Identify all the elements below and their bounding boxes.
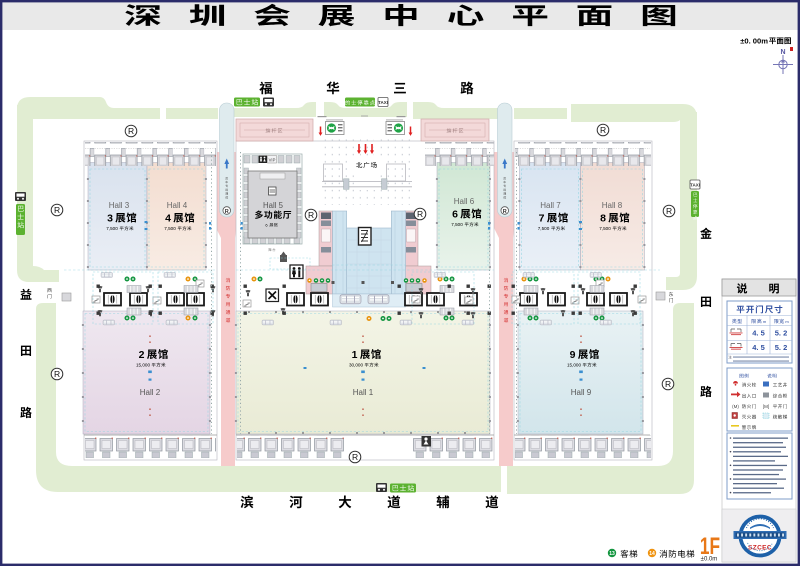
svg-text:R: R: [503, 209, 507, 215]
svg-text:13: 13: [609, 551, 615, 557]
svg-text:TAXI: TAXI: [690, 183, 700, 188]
svg-text:30,000: 30,000: [349, 363, 363, 368]
svg-text:VIP: VIP: [269, 157, 276, 162]
svg-text:TAXI: TAXI: [378, 100, 388, 105]
svg-text:Hall 8: Hall 8: [602, 201, 623, 210]
svg-text:5. 2: 5. 2: [775, 329, 788, 338]
svg-text:15,000: 15,000: [136, 363, 150, 368]
svg-text:7,500: 7,500: [106, 226, 118, 231]
svg-text:Hall 9: Hall 9: [571, 388, 592, 397]
svg-text:±0.0m: ±0.0m: [701, 557, 718, 563]
svg-text:Hall 5: Hall 5: [263, 201, 284, 210]
svg-text:7: 7: [539, 213, 545, 225]
svg-text:Hall 1: Hall 1: [353, 388, 374, 397]
svg-text:8: 8: [600, 213, 606, 225]
svg-text:3: 3: [107, 213, 113, 225]
svg-text:2: 2: [139, 349, 145, 361]
svg-text:9: 9: [570, 349, 576, 361]
svg-text:Hall 2: Hall 2: [140, 388, 161, 397]
svg-text:5. 2: 5. 2: [775, 343, 788, 352]
svg-text:N: N: [780, 49, 785, 56]
svg-text:R: R: [225, 209, 229, 215]
svg-text:±0. 00m: ±0. 00m: [740, 37, 768, 46]
svg-text:1: 1: [352, 349, 358, 361]
svg-text:[M]: [M]: [763, 404, 769, 409]
svg-text:15,000: 15,000: [567, 363, 581, 368]
svg-text:(M): (M): [732, 404, 739, 409]
svg-text:4. 5: 4. 5: [752, 329, 765, 338]
svg-text:7,500: 7,500: [451, 222, 463, 227]
svg-text:7,500: 7,500: [599, 226, 611, 231]
svg-text:Hall 6: Hall 6: [454, 197, 475, 206]
svg-text:Hall 4: Hall 4: [167, 201, 188, 210]
svg-text:7,500: 7,500: [164, 226, 176, 231]
svg-text:6: 6: [452, 209, 458, 221]
svg-text:4: 4: [165, 213, 171, 225]
svg-text:4. 5: 4. 5: [752, 343, 765, 352]
svg-text:Hall 3: Hall 3: [109, 201, 130, 210]
svg-text:Hall 7: Hall 7: [540, 201, 561, 210]
svg-text:14: 14: [649, 551, 655, 557]
svg-text:7,500: 7,500: [538, 226, 550, 231]
